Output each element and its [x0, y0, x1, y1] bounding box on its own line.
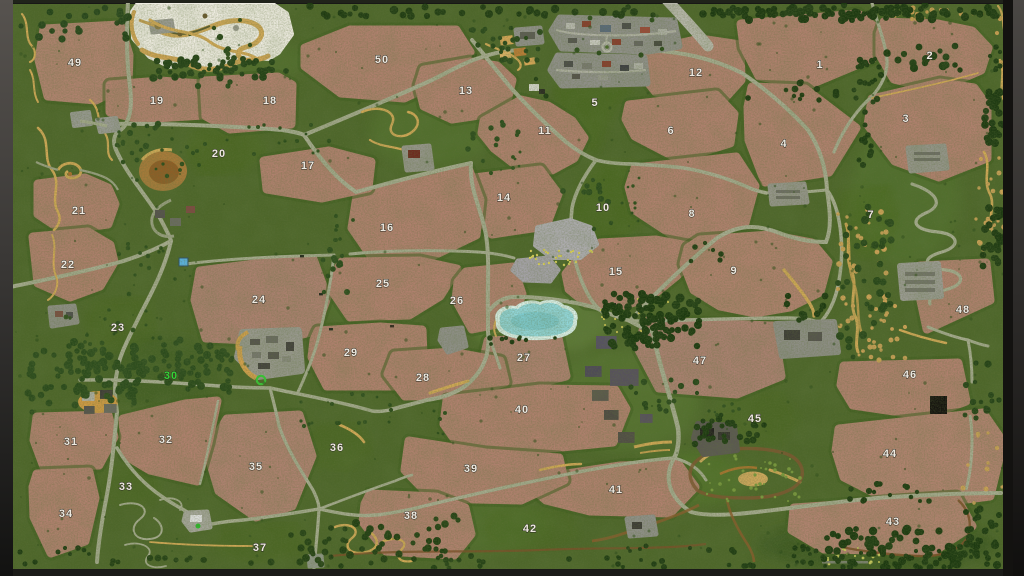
svg-text:25: 25	[376, 278, 390, 290]
svg-text:21: 21	[72, 205, 86, 217]
svg-text:6: 6	[667, 125, 674, 137]
svg-text:33: 33	[119, 481, 133, 493]
svg-text:41: 41	[609, 484, 623, 496]
svg-text:16: 16	[380, 222, 394, 234]
svg-text:2: 2	[926, 50, 933, 62]
svg-text:35: 35	[249, 461, 263, 473]
svg-text:23: 23	[111, 322, 125, 334]
svg-text:48: 48	[956, 304, 970, 316]
svg-text:15: 15	[609, 266, 623, 278]
svg-text:37: 37	[253, 542, 267, 554]
svg-text:43: 43	[886, 516, 900, 528]
svg-text:11: 11	[538, 125, 552, 137]
svg-text:12: 12	[689, 67, 703, 79]
svg-text:13: 13	[459, 85, 473, 97]
svg-text:3: 3	[902, 113, 909, 125]
svg-text:44: 44	[883, 448, 897, 460]
svg-text:19: 19	[150, 95, 164, 107]
svg-text:26: 26	[450, 295, 464, 307]
svg-text:22: 22	[61, 259, 75, 271]
svg-text:9: 9	[730, 265, 737, 277]
svg-text:30: 30	[164, 370, 178, 382]
svg-text:17: 17	[301, 160, 315, 172]
svg-text:10: 10	[596, 202, 610, 214]
svg-text:29: 29	[344, 347, 358, 359]
svg-text:40: 40	[515, 404, 529, 416]
svg-text:1: 1	[816, 59, 823, 71]
svg-text:14: 14	[497, 192, 511, 204]
svg-text:5: 5	[591, 97, 598, 109]
svg-text:38: 38	[404, 510, 418, 522]
svg-text:24: 24	[252, 294, 266, 306]
svg-text:31: 31	[64, 436, 78, 448]
svg-text:36: 36	[330, 442, 344, 454]
svg-text:42: 42	[523, 523, 537, 535]
svg-text:4: 4	[780, 138, 787, 150]
svg-text:39: 39	[464, 463, 478, 475]
svg-text:34: 34	[59, 508, 73, 520]
svg-text:28: 28	[416, 372, 430, 384]
svg-text:46: 46	[903, 369, 917, 381]
svg-text:32: 32	[159, 434, 173, 446]
svg-text:18: 18	[263, 95, 277, 107]
svg-text:50: 50	[375, 54, 389, 66]
svg-text:7: 7	[867, 209, 874, 221]
svg-text:20: 20	[212, 148, 226, 160]
svg-text:27: 27	[517, 352, 531, 364]
svg-text:49: 49	[68, 57, 82, 69]
svg-text:47: 47	[693, 355, 707, 367]
svg-text:45: 45	[748, 413, 762, 425]
svg-text:8: 8	[688, 208, 695, 220]
